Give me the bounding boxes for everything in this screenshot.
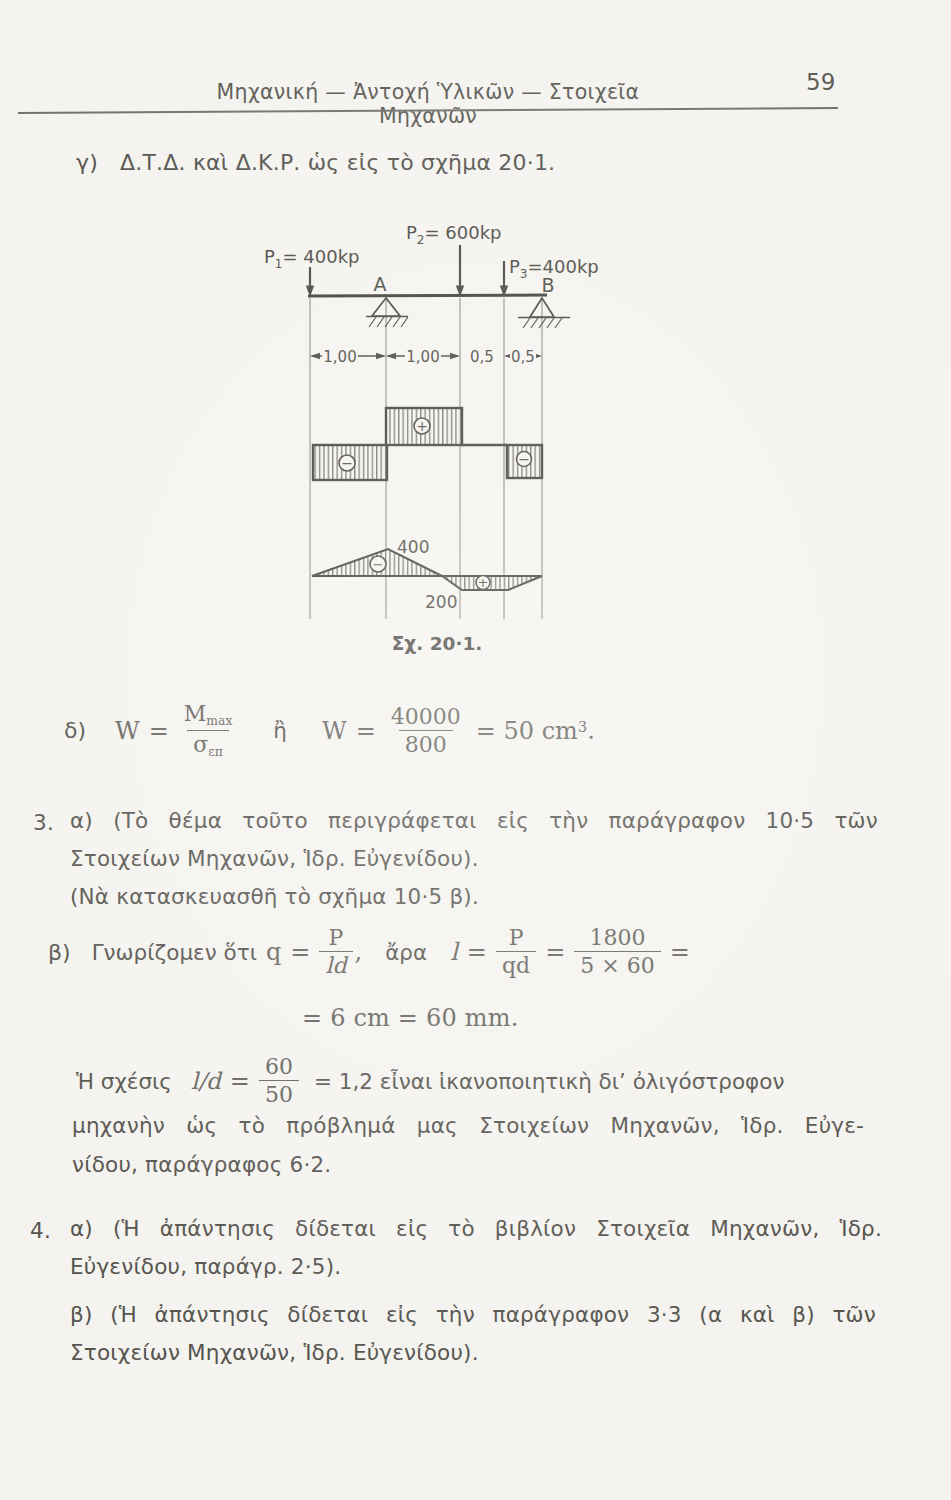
delta-result: = 50 cm3.	[476, 717, 595, 745]
beta-result-line: = 6 cm = 60 mm.	[302, 1004, 519, 1032]
load-arrow-p3	[500, 261, 508, 297]
load-label-p2: P2= 600kp	[406, 222, 502, 247]
delta-fraction-40000-800: 40000 800	[385, 705, 467, 757]
moment-sign-1: −	[373, 557, 384, 572]
item-beta-label: β)	[48, 940, 71, 965]
moment-value-mid: 200	[425, 592, 457, 612]
beta-intro: Γνωρίζομεν ὅτι	[92, 940, 257, 965]
shear-sign-2: +	[416, 418, 428, 434]
beta-comma: ,	[355, 938, 363, 966]
ratio-lead: Ἡ σχέσις	[76, 1069, 172, 1094]
shear-sign-3: −	[518, 451, 530, 467]
beta-fraction-p-ld: P ld	[319, 926, 352, 978]
ratio-rest: = 1,2 εἶναι ἱκανοποιητικὴ δι’ ὀλιγόστροφ…	[314, 1069, 785, 1094]
item-beta-formula: β) Γνωρίζομεν ὅτι q = P ld , ἄρα l = P q…	[48, 926, 690, 978]
dim-label-3: 0,5	[470, 348, 494, 366]
beta-eq4: =	[670, 938, 690, 966]
shear-diagram: − + −	[313, 408, 542, 480]
section4-a-line2: Εὐγενίδου, παράγρ. 2·5).	[70, 1254, 341, 1279]
delta-w2: W	[322, 717, 347, 745]
load-arrow-p2	[456, 245, 464, 297]
section3-line3: (Νὰ κατασκευασθῆ τὸ σχῆμα 10·5 β).	[70, 884, 479, 909]
item-gamma: γ)Δ.Τ.Δ. καὶ Δ.Κ.Ρ. ὡς εἰς τὸ σχῆμα 20·1…	[76, 150, 555, 175]
moment-diagram: − + 400 200	[312, 537, 542, 612]
beta-fraction-p-qd: P qd	[496, 926, 536, 978]
ratio-line3: νίδου, παράγραφος 6·2.	[72, 1152, 331, 1177]
section4-b-line1: β) (Ἡ ἀπάντησις δίδεται εἰς τὴν παράγραφ…	[70, 1302, 876, 1327]
beta-ara: ἄρα	[385, 940, 427, 965]
beta-eq2: =	[467, 938, 487, 966]
dim-label-1: 1,00	[323, 348, 356, 366]
section3-line2: Στοιχείων Μηχανῶν, Ἱδρ. Εὐγενίδου).	[70, 846, 479, 871]
load-arrow-p1	[306, 267, 314, 297]
delta-fraction-mmax-sigma: Mmax σεπ	[178, 702, 239, 760]
beta-eq3: =	[545, 938, 565, 966]
figure-caption: Σχ. 20·1.	[392, 633, 483, 654]
scanned-book-page: { "header": { "title": "Μηχανική — Ἀντοχ…	[0, 0, 951, 1500]
beta-l: l	[450, 938, 458, 966]
page-number: 59	[806, 69, 835, 95]
support-label-a: A	[374, 273, 387, 295]
item-gamma-label: γ)	[76, 150, 98, 175]
item-delta-formula: δ) W = Mmax σεπ ἢ W = 40000 800 = 50 cm3…	[64, 702, 595, 760]
section4-number: 4.	[30, 1218, 51, 1243]
moment-trapezoid-positive	[442, 576, 542, 590]
item-delta-label: δ)	[64, 718, 86, 743]
support-label-b: B	[541, 274, 554, 296]
figure-beam-diagram: P1= 400kp P2= 600kp P3=400kp A B	[230, 205, 700, 670]
beam-line	[308, 295, 547, 296]
delta-eq: =	[149, 717, 169, 745]
delta-or-word: ἢ	[273, 718, 287, 743]
moment-sign-2: +	[478, 575, 489, 590]
delta-w: W	[115, 717, 140, 745]
beta-q: q	[266, 938, 281, 966]
moment-value-max: 400	[397, 537, 429, 557]
dim-label-4: 0,5	[511, 348, 535, 366]
load-label-p1: P1= 400kp	[264, 246, 360, 271]
dim-label-2: 1,00	[406, 348, 439, 366]
support-b	[518, 298, 570, 328]
page-header-title: Μηχανική — Ἀντοχή Ὑλικῶν — Στοιχεῖα Μηχα…	[168, 80, 688, 128]
ratio-eq: =	[230, 1067, 250, 1095]
section4-a-line1: α) (Ἡ ἀπάντησις δίδεται εἰς τὸ βιβλίον Σ…	[70, 1216, 882, 1241]
ratio-lhs: l/d	[191, 1068, 221, 1094]
section3-number: 3.	[33, 810, 54, 835]
section3-line1: α) (Τὸ θέμα τοῦτο περιγράφεται εἰς τὴν π…	[70, 808, 878, 833]
section4-b-line2: Στοιχείων Μηχανῶν, Ἱδρ. Εὐγενίδου).	[70, 1340, 479, 1365]
beta-eq: =	[290, 938, 310, 966]
ratio-line2: μηχανὴν ὡς τὸ πρόβλημά μας Στοιχείων Μηχ…	[72, 1113, 864, 1138]
delta-eq2: =	[356, 717, 376, 745]
ratio-fraction-60-50: 60 50	[259, 1055, 299, 1107]
shear-sign-1: −	[341, 455, 353, 471]
support-a	[366, 298, 408, 327]
item-gamma-text: Δ.Τ.Δ. καὶ Δ.Κ.Ρ. ὡς εἰς τὸ σχῆμα 20·1.	[120, 150, 555, 175]
ratio-formula-line: Ἡ σχέσις l/d = 60 50 = 1,2 εἶναι ἱκανοπο…	[76, 1055, 784, 1107]
beta-fraction-1800: 1800 5 × 60	[574, 926, 660, 978]
